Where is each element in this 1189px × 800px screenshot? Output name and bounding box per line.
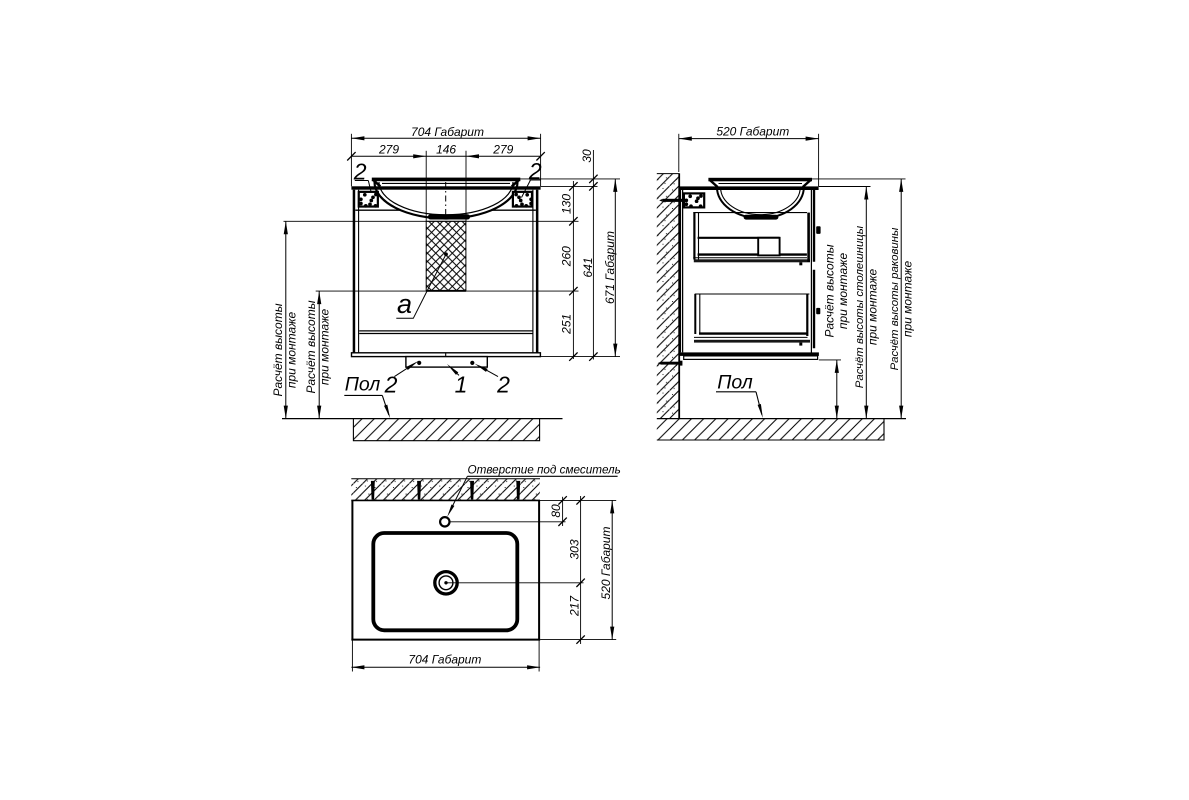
- svg-text:а: а: [397, 289, 412, 319]
- svg-text:217: 217: [567, 595, 581, 617]
- svg-text:30: 30: [580, 149, 594, 163]
- svg-text:при монтаже: при монтаже: [318, 309, 332, 386]
- svg-text:520 Габарит: 520 Габарит: [716, 125, 789, 139]
- svg-text:704 Габарит: 704 Габарит: [411, 125, 484, 139]
- svg-text:Отверстие под смеситель: Отверстие под смеситель: [468, 464, 621, 477]
- svg-text:при монтаже: при монтаже: [284, 312, 298, 389]
- svg-text:80: 80: [549, 504, 563, 518]
- svg-text:при монтаже: при монтаже: [836, 253, 850, 330]
- svg-text:Расчёт высоты столешницы: Расчёт высоты столешницы: [854, 225, 866, 388]
- svg-text:при монтаже: при монтаже: [901, 261, 915, 338]
- svg-text:Расчёт высоты: Расчёт высоты: [271, 303, 285, 396]
- svg-text:Расчёт высоты раковины: Расчёт высоты раковины: [889, 227, 901, 370]
- svg-text:279: 279: [492, 143, 513, 157]
- svg-text:520 Габарит: 520 Габарит: [599, 527, 613, 600]
- svg-text:303: 303: [567, 539, 581, 559]
- svg-text:1: 1: [455, 372, 468, 398]
- svg-text:146: 146: [436, 143, 456, 157]
- svg-text:279: 279: [378, 143, 399, 157]
- svg-text:130: 130: [560, 194, 574, 214]
- svg-text:251: 251: [560, 314, 574, 335]
- svg-text:Пол: Пол: [717, 372, 753, 394]
- svg-text:при монтаже: при монтаже: [866, 269, 880, 346]
- svg-text:671 Габарит: 671 Габарит: [603, 231, 617, 304]
- svg-text:2: 2: [496, 372, 510, 398]
- svg-text:260: 260: [560, 246, 574, 267]
- svg-text:Расчёт высоты: Расчёт высоты: [823, 244, 837, 337]
- svg-text:Пол: Пол: [345, 373, 381, 395]
- svg-text:704 Габарит: 704 Габарит: [408, 653, 481, 667]
- svg-text:Расчёт высоты: Расчёт высоты: [304, 300, 318, 393]
- svg-text:641: 641: [581, 257, 595, 277]
